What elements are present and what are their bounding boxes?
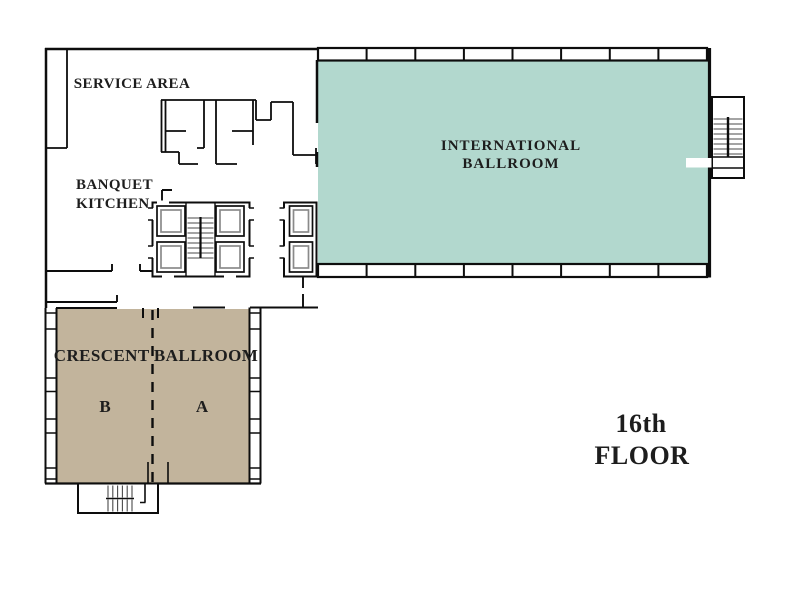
door-gap	[162, 275, 174, 279]
door-gap	[248, 246, 252, 258]
core-stairwell	[186, 203, 215, 277]
floor-title-line2: FLOOR	[595, 441, 690, 470]
door-gap	[157, 201, 169, 205]
banquet-kitchen-label-line2: KITCHEN	[76, 196, 150, 212]
door-gap	[151, 208, 155, 220]
elevator-core	[148, 201, 317, 279]
south-stairwell	[78, 484, 158, 514]
banquet-kitchen-label-line1: BANQUET	[76, 177, 153, 193]
service-room-partitions	[161, 100, 316, 164]
floor-plan: INTERNATIONAL BALLROOM SERVICE AREA BANQ…	[0, 0, 792, 612]
floor-title-line1: 16th	[615, 409, 666, 438]
west-window-frames	[45, 313, 57, 479]
crescent-ballroom: CRESCENT BALLROOM B A	[45, 308, 318, 514]
international-ballroom-label-line1: INTERNATIONAL	[441, 138, 581, 154]
crescent-ballroom-label: CRESCENT BALLROOM	[54, 346, 258, 365]
door-gap	[248, 208, 252, 220]
service-area-label: SERVICE AREA	[74, 76, 190, 92]
door-gap	[282, 208, 286, 220]
east-window-frames	[249, 313, 261, 479]
international-ballroom-label-line2: BALLROOM	[462, 156, 559, 172]
door-gap	[224, 275, 236, 279]
crescent-section-b-label: B	[99, 397, 110, 416]
floor-plan-drawing: INTERNATIONAL BALLROOM SERVICE AREA BANQ…	[0, 0, 792, 612]
east-window-band	[250, 308, 261, 484]
door-gap	[282, 246, 286, 258]
door-gap	[151, 246, 155, 258]
crescent-section-a-label: A	[196, 397, 209, 416]
floor-title: 16th FLOOR	[595, 409, 690, 470]
east-stair-door-opening	[686, 158, 712, 168]
west-shaft-walls	[46, 49, 67, 148]
international-ballroom: INTERNATIONAL BALLROOM	[318, 48, 744, 278]
west-window-band	[46, 308, 57, 484]
